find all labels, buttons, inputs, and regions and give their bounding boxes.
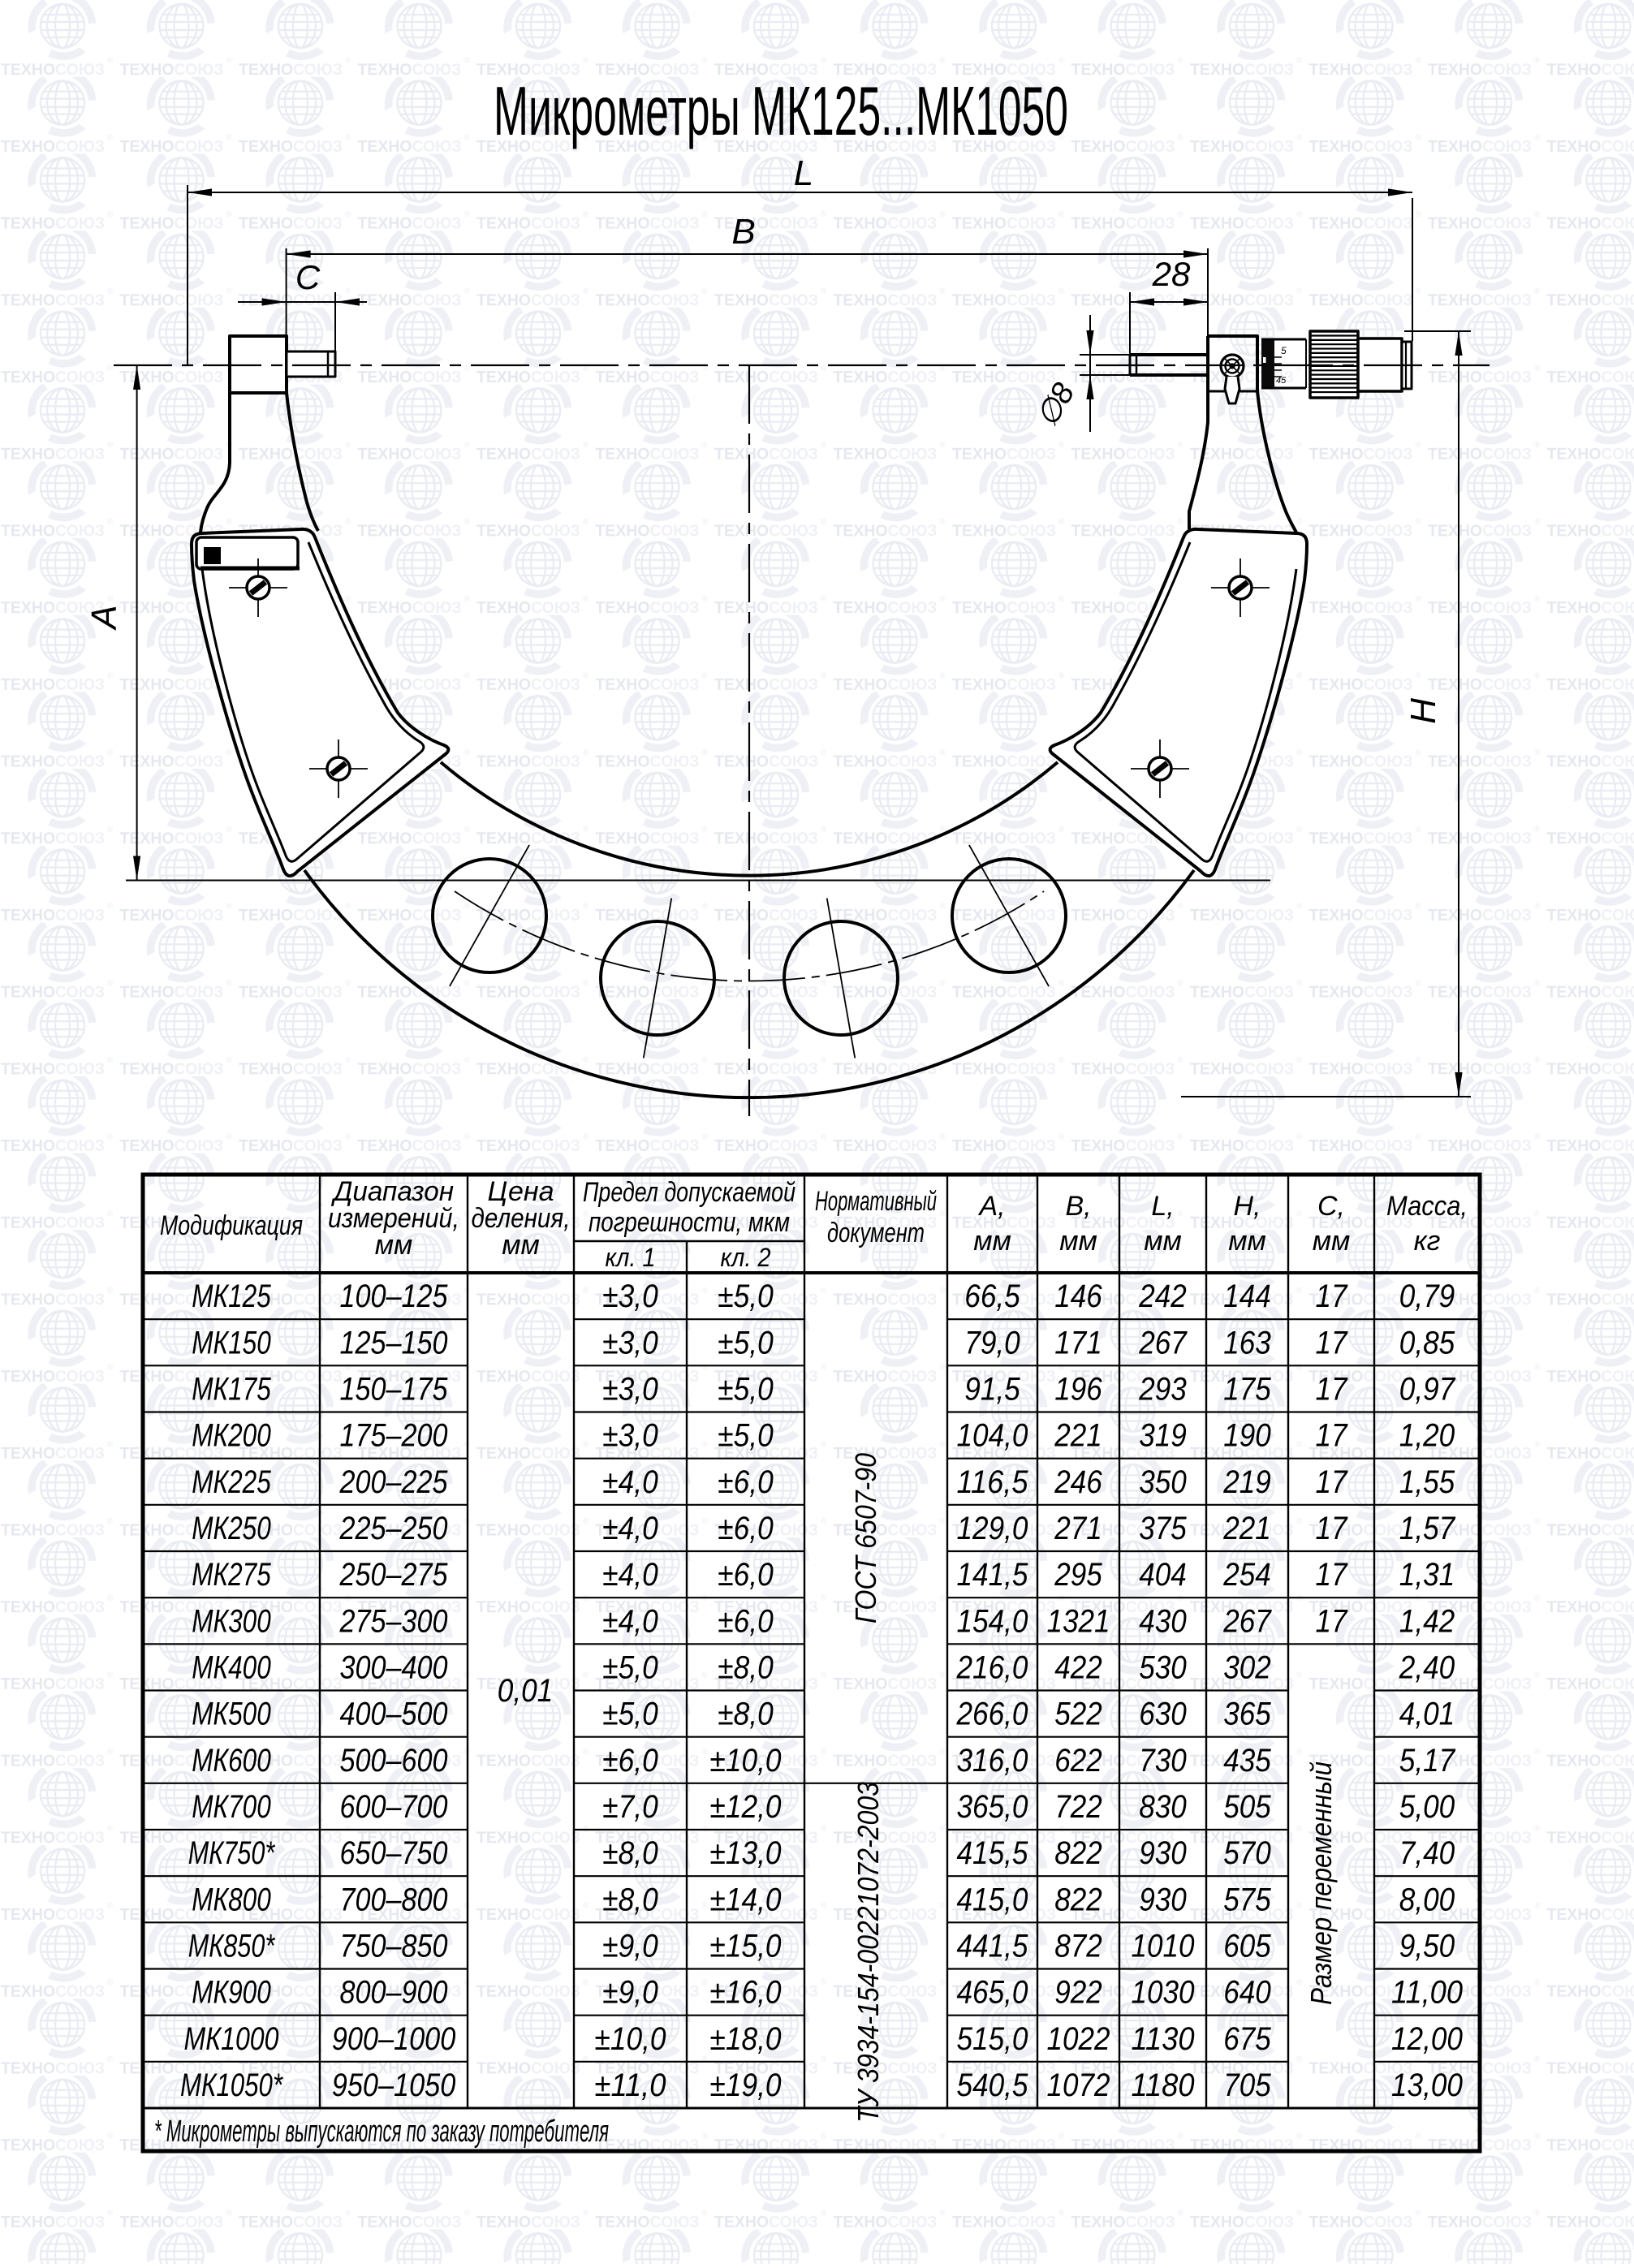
- svg-text:1010: 1010: [1132, 1928, 1195, 1964]
- svg-text:1180: 1180: [1132, 2068, 1195, 2103]
- svg-text:±4,0: ±4,0: [602, 1464, 658, 1500]
- svg-text:±7,0: ±7,0: [602, 1789, 658, 1825]
- svg-text:Н,: Н,: [1234, 1191, 1261, 1222]
- svg-text:Размер переменный: Размер переменный: [1304, 1761, 1338, 2005]
- svg-text:В,: В,: [1065, 1191, 1091, 1222]
- svg-text:кл. 1: кл. 1: [606, 1243, 656, 1272]
- svg-text:Нормативный: Нормативный: [815, 1186, 937, 1217]
- svg-text:МК275: МК275: [192, 1557, 271, 1593]
- svg-text:319: 319: [1139, 1418, 1187, 1454]
- svg-text:±8,0: ±8,0: [602, 1882, 658, 1917]
- svg-text:930: 930: [1139, 1882, 1187, 1917]
- svg-text:104,0: 104,0: [957, 1418, 1028, 1454]
- svg-text:мм: мм: [1313, 1226, 1351, 1257]
- svg-text:375: 375: [1139, 1511, 1187, 1546]
- svg-text:±10,0: ±10,0: [710, 1743, 782, 1779]
- svg-text:200–225: 200–225: [339, 1464, 448, 1500]
- svg-text:246: 246: [1054, 1464, 1102, 1500]
- svg-text:2,40: 2,40: [1399, 1649, 1455, 1685]
- svg-text:242: 242: [1138, 1278, 1186, 1314]
- svg-text:404: 404: [1139, 1557, 1187, 1593]
- svg-text:±5,0: ±5,0: [602, 1697, 658, 1732]
- svg-text:11,00: 11,00: [1391, 1975, 1463, 2011]
- svg-text:271: 271: [1054, 1511, 1102, 1546]
- svg-text:±3,0: ±3,0: [602, 1278, 658, 1314]
- svg-text:МК250: МК250: [192, 1511, 271, 1546]
- svg-text:630: 630: [1139, 1697, 1187, 1732]
- svg-text:мм: мм: [502, 1230, 540, 1261]
- svg-text:±4,0: ±4,0: [602, 1511, 658, 1546]
- svg-text:17: 17: [1316, 1418, 1349, 1454]
- svg-text:кл. 2: кл. 2: [721, 1243, 771, 1272]
- svg-text:МК400: МК400: [192, 1649, 271, 1685]
- svg-text:575: 575: [1223, 1882, 1271, 1917]
- svg-text:293: 293: [1138, 1371, 1186, 1407]
- svg-text:216,0: 216,0: [956, 1649, 1028, 1685]
- svg-text:1,31: 1,31: [1399, 1557, 1455, 1593]
- svg-text:мм: мм: [1059, 1226, 1097, 1257]
- svg-text:±19,0: ±19,0: [710, 2068, 782, 2103]
- svg-text:документ: документ: [827, 1218, 925, 1248]
- svg-text:±3,0: ±3,0: [602, 1418, 658, 1454]
- svg-text:±3,0: ±3,0: [602, 1371, 658, 1407]
- svg-text:540,5: 540,5: [957, 2068, 1029, 2103]
- svg-text:17: 17: [1316, 1511, 1349, 1546]
- svg-text:125–150: 125–150: [340, 1325, 448, 1360]
- svg-text:±6,0: ±6,0: [718, 1557, 774, 1593]
- svg-text:1,42: 1,42: [1399, 1603, 1455, 1639]
- svg-text:кг: кг: [1414, 1226, 1441, 1257]
- svg-text:±6,0: ±6,0: [718, 1511, 774, 1546]
- svg-text:500–600: 500–600: [340, 1743, 448, 1779]
- svg-text:530: 530: [1139, 1649, 1187, 1685]
- svg-text:±5,0: ±5,0: [718, 1371, 774, 1407]
- svg-text:0,97: 0,97: [1399, 1371, 1456, 1407]
- svg-text:±13,0: ±13,0: [710, 1835, 782, 1871]
- svg-text:722: 722: [1054, 1789, 1102, 1825]
- svg-text:700–800: 700–800: [340, 1882, 448, 1917]
- svg-text:116,5: 116,5: [957, 1464, 1029, 1500]
- svg-text:МК850*: МК850*: [188, 1928, 276, 1964]
- svg-text:±8,0: ±8,0: [718, 1649, 774, 1685]
- svg-text:250–275: 250–275: [339, 1557, 448, 1593]
- svg-text:17: 17: [1316, 1557, 1349, 1593]
- svg-text:МК750*: МК750*: [188, 1835, 276, 1871]
- svg-text:522: 522: [1054, 1697, 1102, 1732]
- svg-text:ТУ 3934-154-00221072-2003: ТУ 3934-154-00221072-2003: [851, 1782, 885, 2123]
- svg-text:±9,0: ±9,0: [602, 1975, 658, 2011]
- svg-text:0,79: 0,79: [1399, 1278, 1455, 1314]
- svg-text:1072: 1072: [1047, 2068, 1110, 2103]
- svg-text:Микрометры МК125...МК1050: Микрометры МК125...МК1050: [494, 73, 1068, 150]
- svg-text:146: 146: [1054, 1278, 1102, 1314]
- svg-text:144: 144: [1223, 1278, 1271, 1314]
- svg-text:* Микрометры выпускаются по за: * Микрометры выпускаются по заказу потре…: [154, 2115, 609, 2149]
- svg-text:605: 605: [1223, 1928, 1271, 1964]
- svg-text:570: 570: [1223, 1835, 1271, 1871]
- svg-text:5: 5: [1281, 345, 1287, 356]
- svg-text:МК900: МК900: [192, 1975, 271, 2011]
- svg-text:171: 171: [1054, 1325, 1102, 1360]
- svg-text:±5,0: ±5,0: [718, 1325, 774, 1360]
- svg-text:400–500: 400–500: [340, 1697, 448, 1732]
- svg-text:800–900: 800–900: [340, 1975, 448, 2011]
- svg-text:МК200: МК200: [192, 1418, 271, 1454]
- svg-text:430: 430: [1139, 1603, 1187, 1639]
- svg-text:730: 730: [1139, 1743, 1187, 1779]
- svg-text:±16,0: ±16,0: [710, 1975, 782, 2011]
- svg-text:МК225: МК225: [192, 1464, 271, 1500]
- svg-text:221: 221: [1054, 1418, 1102, 1454]
- svg-text:221: 221: [1222, 1511, 1270, 1546]
- svg-text:225–250: 225–250: [339, 1511, 448, 1546]
- svg-text:505: 505: [1223, 1789, 1271, 1825]
- svg-text:A: A: [84, 605, 124, 631]
- svg-text:±8,0: ±8,0: [602, 1835, 658, 1871]
- svg-text:МК150: МК150: [192, 1325, 271, 1360]
- svg-text:МК1050*: МК1050*: [180, 2068, 283, 2103]
- svg-text:830: 830: [1139, 1789, 1187, 1825]
- svg-text:±5,0: ±5,0: [718, 1418, 774, 1454]
- svg-text:МК125: МК125: [192, 1278, 271, 1314]
- svg-text:9,50: 9,50: [1399, 1928, 1455, 1964]
- svg-text:±11,0: ±11,0: [595, 2068, 666, 2103]
- svg-text:66,5: 66,5: [964, 1278, 1020, 1314]
- svg-text:254: 254: [1222, 1557, 1270, 1593]
- svg-text:МК500: МК500: [192, 1697, 271, 1732]
- svg-text:МК1000: МК1000: [184, 2021, 279, 2057]
- svg-text:28: 28: [1152, 255, 1191, 293]
- svg-text:±12,0: ±12,0: [710, 1789, 782, 1825]
- svg-text:±4,0: ±4,0: [602, 1603, 658, 1639]
- svg-text:705: 705: [1223, 2068, 1271, 2103]
- svg-text:±9,0: ±9,0: [602, 1928, 658, 1964]
- svg-text:погрешности, мкм: погрешности, мкм: [588, 1207, 790, 1238]
- svg-text:365: 365: [1223, 1697, 1271, 1732]
- svg-text:219: 219: [1222, 1464, 1270, 1500]
- svg-text:45: 45: [1276, 376, 1287, 386]
- svg-text:675: 675: [1223, 2021, 1271, 2057]
- svg-text:С,: С,: [1317, 1191, 1345, 1222]
- svg-text:190: 190: [1223, 1418, 1271, 1454]
- svg-text:267: 267: [1138, 1325, 1188, 1360]
- svg-text:±14,0: ±14,0: [710, 1882, 782, 1917]
- svg-text:мм: мм: [1228, 1226, 1266, 1257]
- svg-text:1,20: 1,20: [1399, 1418, 1455, 1454]
- svg-text:295: 295: [1054, 1557, 1102, 1593]
- svg-text:L: L: [794, 153, 813, 193]
- svg-text:12,00: 12,00: [1391, 2021, 1463, 2057]
- svg-text:1030: 1030: [1132, 1975, 1195, 2011]
- svg-text:465,0: 465,0: [957, 1975, 1028, 2011]
- svg-text:600–700: 600–700: [340, 1789, 448, 1825]
- svg-text:C: C: [295, 258, 321, 296]
- svg-text:640: 640: [1223, 1975, 1271, 2011]
- svg-text:МК600: МК600: [192, 1743, 271, 1779]
- svg-text:822: 822: [1054, 1882, 1102, 1917]
- svg-text:17: 17: [1316, 1371, 1349, 1407]
- svg-text:1130: 1130: [1132, 2021, 1195, 2057]
- svg-text:13,00: 13,00: [1391, 2068, 1463, 2103]
- svg-text:365,0: 365,0: [957, 1789, 1028, 1825]
- svg-text:17: 17: [1316, 1278, 1349, 1314]
- svg-text:163: 163: [1223, 1325, 1271, 1360]
- svg-text:4,01: 4,01: [1399, 1697, 1455, 1732]
- svg-text:302: 302: [1223, 1649, 1271, 1685]
- svg-text:415,5: 415,5: [957, 1835, 1029, 1871]
- svg-text:17: 17: [1316, 1325, 1349, 1360]
- svg-text:17: 17: [1316, 1603, 1349, 1639]
- svg-text:5,17: 5,17: [1399, 1743, 1456, 1779]
- svg-text:750–850: 750–850: [340, 1928, 448, 1964]
- svg-text:±5,0: ±5,0: [718, 1278, 774, 1314]
- svg-text:5,00: 5,00: [1399, 1789, 1455, 1825]
- svg-text:129,0: 129,0: [957, 1511, 1028, 1546]
- svg-text:650–750: 650–750: [340, 1835, 448, 1871]
- svg-text:МК800: МК800: [192, 1882, 271, 1917]
- svg-text:±6,0: ±6,0: [718, 1464, 774, 1500]
- svg-text:МК300: МК300: [192, 1603, 271, 1639]
- svg-text:L,: L,: [1151, 1191, 1174, 1222]
- svg-text:8,00: 8,00: [1399, 1882, 1455, 1917]
- svg-text:100–125: 100–125: [340, 1278, 449, 1314]
- svg-text:17: 17: [1316, 1464, 1349, 1500]
- svg-text:316,0: 316,0: [957, 1743, 1028, 1779]
- svg-text:822: 822: [1054, 1835, 1102, 1871]
- svg-text:930: 930: [1139, 1835, 1187, 1871]
- svg-text:B: B: [731, 212, 755, 252]
- svg-text:150–175: 150–175: [340, 1371, 449, 1407]
- svg-text:±5,0: ±5,0: [602, 1649, 658, 1685]
- svg-text:435: 435: [1223, 1743, 1271, 1779]
- svg-text:±6,0: ±6,0: [718, 1603, 774, 1639]
- svg-text:Масса,: Масса,: [1386, 1191, 1468, 1222]
- svg-text:515,0: 515,0: [957, 2021, 1028, 2057]
- svg-text:141,5: 141,5: [957, 1557, 1029, 1593]
- svg-text:872: 872: [1054, 1928, 1102, 1964]
- svg-text:267: 267: [1222, 1603, 1272, 1639]
- svg-text:300–400: 300–400: [340, 1649, 448, 1685]
- svg-text:±15,0: ±15,0: [710, 1928, 782, 1964]
- svg-text:±10,0: ±10,0: [595, 2021, 666, 2057]
- svg-text:350: 350: [1139, 1464, 1187, 1500]
- svg-text:1,55: 1,55: [1399, 1464, 1455, 1500]
- svg-text:1321: 1321: [1047, 1603, 1110, 1639]
- svg-text:79,0: 79,0: [964, 1325, 1020, 1360]
- svg-text:154,0: 154,0: [957, 1603, 1028, 1639]
- svg-text:266,0: 266,0: [956, 1697, 1028, 1732]
- svg-text:±6,0: ±6,0: [602, 1743, 658, 1779]
- svg-text:7,40: 7,40: [1399, 1835, 1455, 1871]
- svg-text:±18,0: ±18,0: [710, 2021, 782, 2057]
- svg-text:1022: 1022: [1047, 2021, 1110, 2057]
- svg-text:мм: мм: [1144, 1226, 1182, 1257]
- svg-text:±4,0: ±4,0: [602, 1557, 658, 1593]
- svg-text:275–300: 275–300: [339, 1603, 448, 1639]
- svg-text:91,5: 91,5: [964, 1371, 1020, 1407]
- svg-text:0,01: 0,01: [498, 1673, 554, 1709]
- svg-text:А,: А,: [977, 1191, 1005, 1222]
- svg-text:175–200: 175–200: [340, 1418, 448, 1454]
- svg-text:Модификация: Модификация: [160, 1210, 303, 1241]
- svg-text:1,57: 1,57: [1399, 1511, 1456, 1546]
- svg-text:мм: мм: [973, 1226, 1011, 1257]
- svg-text:ГОСТ 6507-90: ГОСТ 6507-90: [849, 1453, 882, 1623]
- svg-text:900–1000: 900–1000: [332, 2021, 456, 2057]
- svg-text:950–1050: 950–1050: [332, 2068, 456, 2103]
- svg-text:Предел допускаемой: Предел допускаемой: [583, 1177, 795, 1208]
- svg-text:196: 196: [1054, 1371, 1102, 1407]
- svg-text:441,5: 441,5: [957, 1928, 1029, 1964]
- svg-text:МК175: МК175: [192, 1371, 271, 1407]
- svg-text:±3,0: ±3,0: [602, 1325, 658, 1360]
- svg-text:МК700: МК700: [192, 1789, 271, 1825]
- svg-text:H: H: [1403, 698, 1443, 724]
- svg-text:0,85: 0,85: [1399, 1325, 1455, 1360]
- svg-text:922: 922: [1054, 1975, 1102, 2011]
- svg-text:±8,0: ±8,0: [718, 1697, 774, 1732]
- svg-text:415,0: 415,0: [957, 1882, 1028, 1917]
- svg-text:422: 422: [1054, 1649, 1102, 1685]
- svg-text:622: 622: [1054, 1743, 1102, 1779]
- svg-text:мм: мм: [375, 1230, 413, 1261]
- svg-text:175: 175: [1223, 1371, 1271, 1407]
